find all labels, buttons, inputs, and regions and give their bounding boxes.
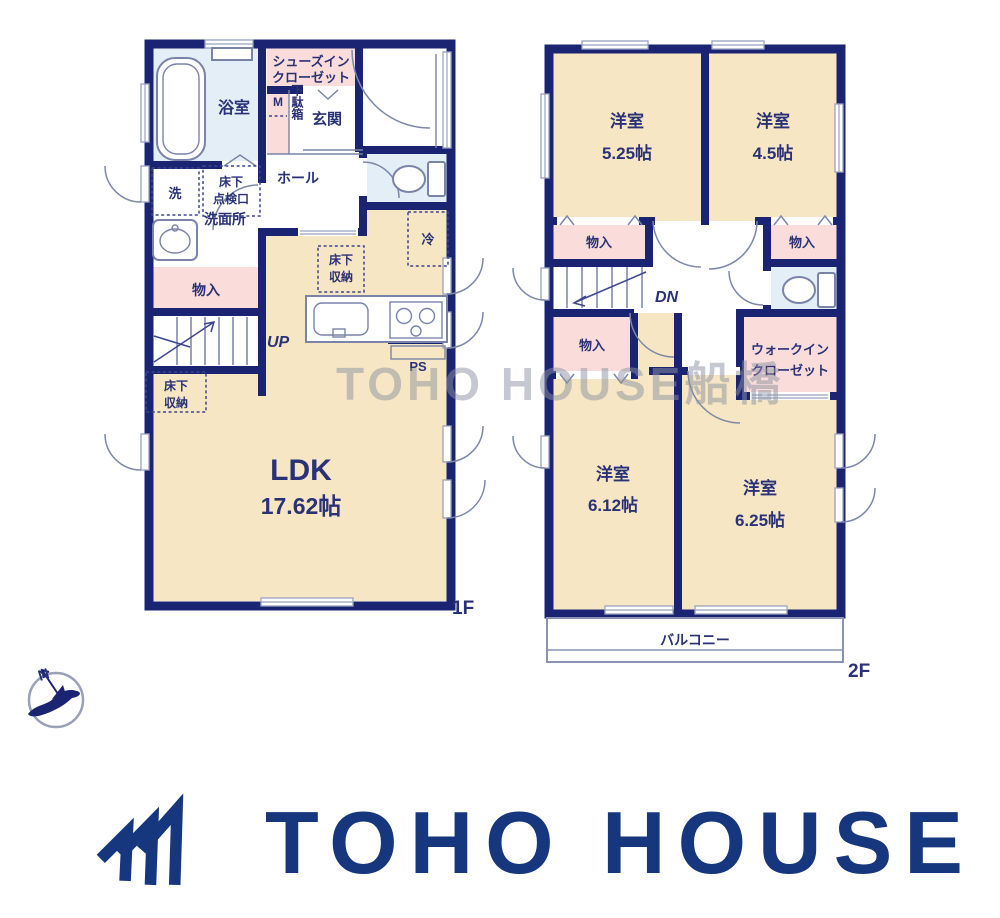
label-shoes-closet-line1: シューズイン <box>272 54 349 69</box>
label-stairs-up: UP <box>267 334 290 351</box>
label-entrance: 玄関 <box>312 110 342 128</box>
label-storage-tl: 物入 <box>586 235 612 250</box>
label-floor1: 1F <box>452 598 474 619</box>
label-washroom: 洗面所 <box>204 211 246 227</box>
label-room-tl: 洋室 <box>610 111 644 131</box>
label-wic-line1: ウォークイン <box>751 342 829 357</box>
label-underfloor-storage-living-line1: 床下 <box>164 378 188 393</box>
label-shoe-cabinet: 下駄箱 <box>290 84 304 121</box>
toho-house-logo-text: TOHO HOUSE <box>265 792 975 894</box>
label-storage-1f: 物入 <box>192 282 220 298</box>
toho-house-logo: TOHO HOUSE <box>95 768 975 918</box>
label-washer: 洗 <box>168 186 181 201</box>
label-room-bl: 洋室 <box>596 464 630 484</box>
label-underfloor-storage-kitchen-line2: 収納 <box>329 269 353 284</box>
label-room-tr: 洋室 <box>756 111 790 131</box>
label-shoes-closet-line2: クローゼット <box>272 70 350 85</box>
label-underfloor-storage-living-line2: 収納 <box>164 395 188 410</box>
label-underfloor-storage-kitchen-line1: 床下 <box>329 252 353 267</box>
label-meter: M <box>273 95 283 109</box>
label-underfloor-hatch-line1: 床下 <box>219 174 243 189</box>
label-balcony: バルコニー <box>660 632 730 648</box>
floor1-plan: 浴室 シューズイン クローゼット M 下駄箱 玄関 ホール 洗 床下 点検口 洗… <box>105 40 485 619</box>
label-room-tl-size: 5.25帖 <box>602 143 652 163</box>
label-ldk-size: 17.62帖 <box>261 493 342 519</box>
label-room-bl-size: 6.12帖 <box>588 495 638 515</box>
label-ldk: LDK <box>270 454 332 487</box>
floorplan-page: 浴室 シューズイン クローゼット M 下駄箱 玄関 ホール 洗 床下 点検口 洗… <box>0 0 1000 918</box>
toho-house-logo-mark-icon <box>95 772 199 914</box>
label-storage-ml: 物入 <box>579 338 605 353</box>
label-fridge: 冷 <box>421 232 434 247</box>
label-underfloor-hatch-line2: 点検口 <box>213 191 249 206</box>
label-floor2: 2F <box>848 661 870 682</box>
toilet-icon <box>428 162 445 196</box>
label-hall: ホール <box>277 170 319 186</box>
floorplan-drawing: 浴室 シューズイン クローゼット M 下駄箱 玄関 ホール 洗 床下 点検口 洗… <box>0 0 1000 762</box>
label-room-br-size: 6.25帖 <box>735 510 785 530</box>
compass-icon: N <box>28 665 83 727</box>
label-room-tr-size: 4.5帖 <box>753 143 794 163</box>
bath-counter-icon <box>212 48 252 60</box>
toilet-2f-icon <box>818 273 835 307</box>
label-stairs-down: DN <box>655 289 679 306</box>
floor2-room-fills <box>549 49 841 614</box>
compass-north-label: N <box>36 665 52 685</box>
label-storage-tr: 物入 <box>789 235 815 250</box>
watermark-text: TOHO HOUSE船橋 <box>336 358 784 410</box>
label-room-br: 洋室 <box>743 478 777 498</box>
label-bath: 浴室 <box>218 98 250 117</box>
